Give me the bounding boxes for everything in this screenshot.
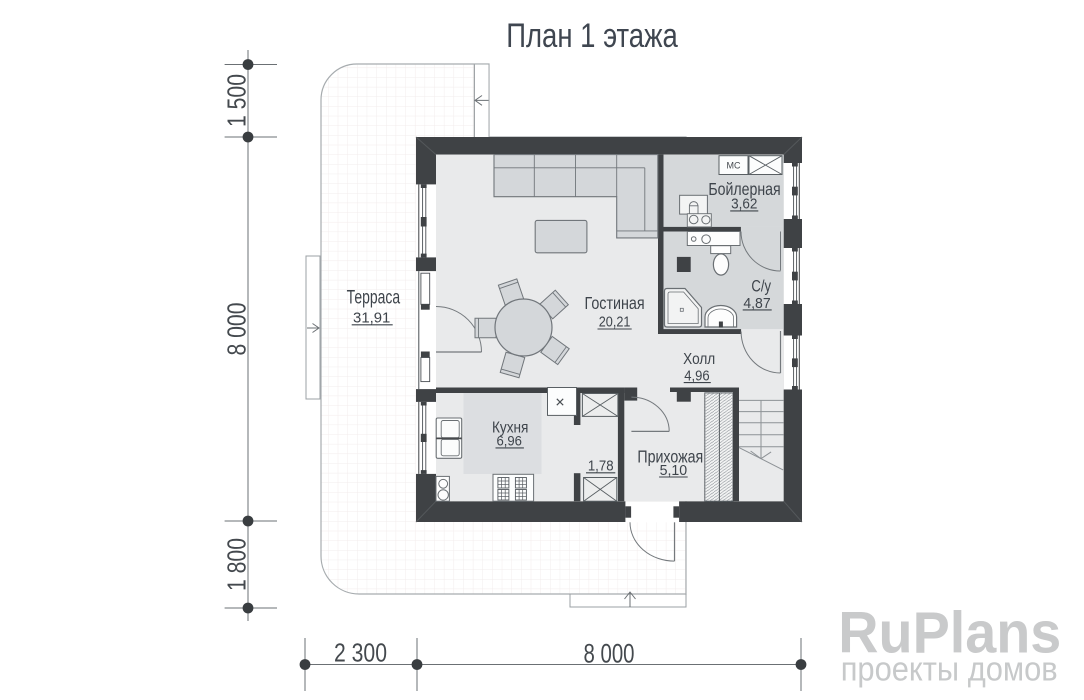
svg-text:1,78: 1,78 (588, 459, 614, 475)
svg-text:МС: МС (727, 161, 741, 172)
svg-text:Гостиная: Гостиная (585, 293, 645, 313)
svg-text:1 800: 1 800 (222, 538, 252, 591)
svg-text:проекты домов: проекты домов (841, 650, 1058, 688)
svg-text:Терраса: Терраса (347, 288, 401, 309)
svg-text:1 500: 1 500 (222, 74, 252, 127)
svg-text:С/у: С/у (751, 276, 771, 295)
svg-text:Холл: Холл (683, 351, 715, 368)
svg-text:8 000: 8 000 (222, 303, 252, 356)
svg-text:2 300: 2 300 (334, 638, 387, 668)
svg-text:31,91: 31,91 (353, 310, 390, 326)
svg-text:6,96: 6,96 (496, 434, 522, 449)
svg-text:8 000: 8 000 (584, 639, 635, 669)
svg-text:4,96: 4,96 (684, 368, 709, 384)
svg-text:20,21: 20,21 (599, 315, 631, 331)
svg-text:3,62: 3,62 (731, 197, 757, 213)
svg-text:План 1 этажа: План 1 этажа (506, 17, 678, 55)
